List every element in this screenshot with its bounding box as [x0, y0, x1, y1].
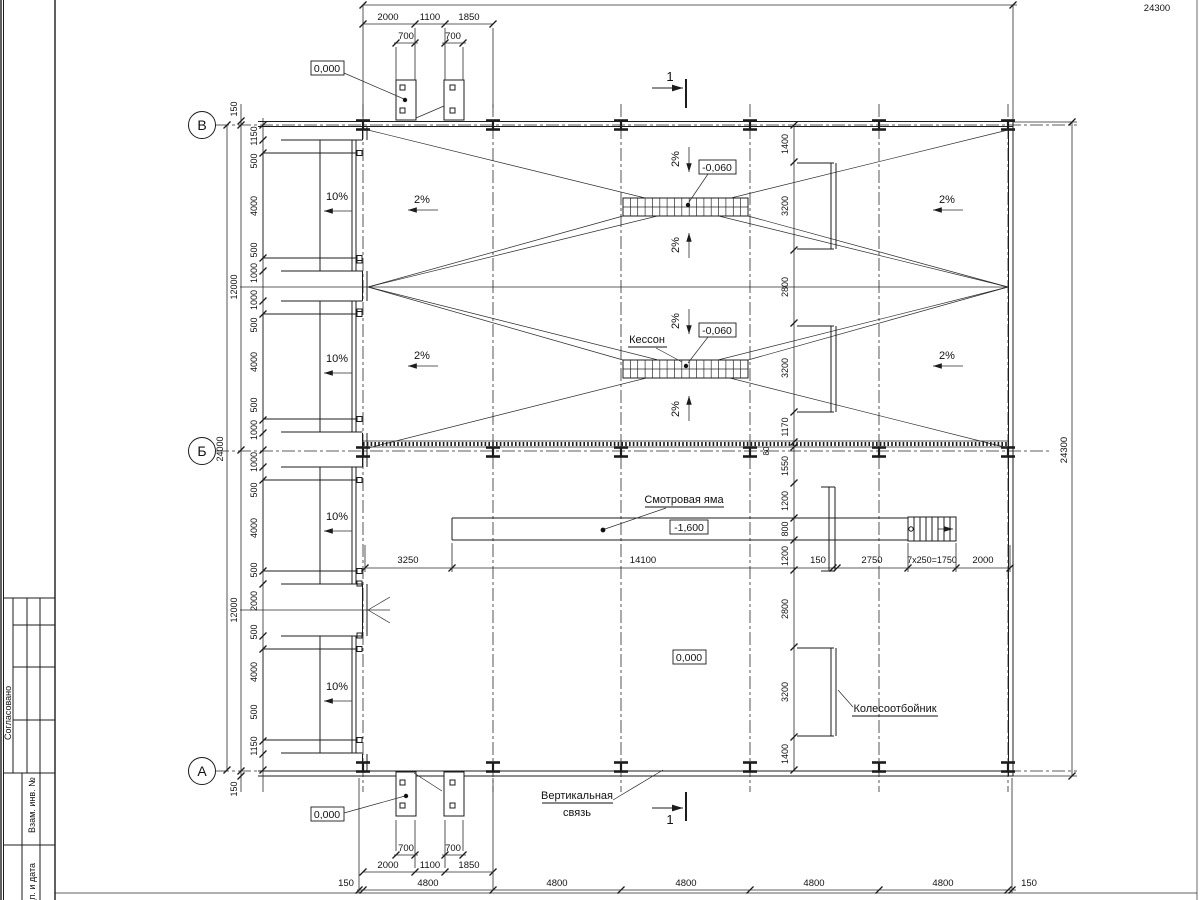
dim-label: 1850 [458, 860, 479, 871]
svg-text:0,000: 0,000 [314, 63, 340, 75]
drain-grate [623, 198, 748, 216]
dim-label: 150 [229, 781, 239, 796]
dim-label: 3200 [780, 196, 790, 216]
dim-label: 24300 [1059, 437, 1070, 463]
svg-text:0,000: 0,000 [676, 652, 702, 664]
dock-ramp [263, 467, 363, 584]
svg-text:2%: 2% [414, 194, 430, 206]
svg-text:-0,060: -0,060 [702, 325, 732, 337]
svg-text:10%: 10% [326, 353, 348, 365]
dim-label: 2800 [780, 277, 790, 297]
vertical-brace-label: Вертикальная связь [541, 770, 663, 819]
dim-label: 1400 [780, 744, 790, 764]
kesson-label: Кессон [628, 334, 682, 362]
svg-text:2%: 2% [670, 237, 682, 253]
drain-grates [623, 198, 748, 378]
dim-label: 1000 [249, 290, 259, 310]
dim-left-overall: 24000 [215, 122, 231, 774]
svg-text:Вертикальная: Вертикальная [541, 790, 613, 802]
dim-label: 500 [249, 242, 259, 257]
elevation-zero-bottom: 0,000 [311, 794, 408, 821]
dim-label: 4000 [249, 352, 259, 372]
pit-stairs [908, 517, 956, 541]
dim-top-rows: 2000 1100 1850 700 700 [360, 12, 497, 108]
dim-label: 4000 [249, 662, 259, 682]
svg-text:10%: 10% [326, 511, 348, 523]
dim-label: 4800 [546, 878, 567, 889]
loading-docks: 10% 10% 10% 10% [263, 140, 363, 753]
dim-label: 4800 [675, 878, 696, 889]
dim-label: 500 [249, 317, 259, 332]
dim-label: 500 [249, 397, 259, 412]
section-mark-bottom: 1 [652, 792, 686, 827]
dim-label: 1000 [249, 420, 259, 440]
svg-text:Смотровая яма: Смотровая яма [644, 494, 724, 506]
drain-channel-band [363, 441, 1008, 447]
dim-right-overall: 24300 [1013, 119, 1077, 780]
dim-label: 4800 [417, 878, 438, 889]
dim-label: 1150 [249, 736, 259, 755]
dim-label: 4800 [932, 878, 953, 889]
dock-ramp [263, 636, 363, 753]
axis-bubble-a: А [197, 763, 207, 779]
dim-label: 4000 [249, 196, 259, 216]
ramp-slope-label: 10% [324, 191, 352, 211]
svg-text:Колесоотбойник: Колесоотбойник [853, 703, 936, 715]
plan-canvas: Согласовано Взам. инв. № Подп. и дата В … [0, 0, 1200, 900]
svg-text:Кессон: Кессон [629, 334, 665, 346]
dim-label: 1000 [249, 452, 259, 472]
elevation-pit: -1,600 [670, 520, 708, 534]
dim-bottom-rows: 700 700 2000 1100 1850 [360, 820, 497, 876]
dim-label: 7x250=1750 [907, 555, 957, 565]
dim-label: 500 [249, 704, 259, 719]
dim-label: 12000 [229, 274, 239, 299]
svg-text:0,000: 0,000 [314, 809, 340, 821]
title-block: Согласовано Взам. инв. № Подп. и дата [3, 598, 55, 900]
dock-ramp [263, 301, 363, 432]
floor-slope-labels: 2% 2% 2% 2% 2% 2% 2% 2% [408, 147, 963, 421]
dim-label: 1170 [780, 417, 790, 436]
dim-label: 1100 [420, 12, 440, 23]
axis-bubble-b: Б [197, 443, 206, 459]
dim-label: 24000 [215, 436, 225, 461]
dim-label: 4000 [249, 518, 259, 538]
dim-label: 800 [780, 521, 790, 536]
dim-label: 4800 [803, 878, 824, 889]
dim-top-overall: 24300 [360, 2, 1171, 122]
dim-right-inner: 1400 3200 2800 3200 1170 80 1550 1200 80… [762, 122, 798, 774]
dim-label: 2000 [249, 591, 259, 611]
dock-ramp [263, 140, 363, 271]
dim-label: 3250 [397, 555, 418, 566]
svg-text:2%: 2% [670, 313, 682, 329]
dim-label: 1000 [249, 263, 259, 283]
dim-label: 80 [762, 446, 771, 455]
dim-label: 3200 [780, 682, 790, 702]
svg-text:2%: 2% [670, 401, 682, 417]
svg-text:1: 1 [666, 69, 673, 84]
dim-label: 500 [249, 624, 259, 639]
foundation-pads [396, 80, 464, 816]
dim-label: 24300 [1144, 3, 1170, 14]
dim-left-detail: 1150 500 4000 500 1000 1000 500 4000 500… [249, 118, 267, 792]
dim-left-halves: 150 12000 12000 150 [229, 101, 245, 796]
drain-grate [623, 360, 748, 378]
dim-label: 2750 [861, 555, 882, 566]
dim-label: 700 [398, 31, 414, 42]
dim-label: 1150 [249, 126, 259, 145]
dim-label: 500 [249, 153, 259, 168]
section-mark-top: 1 [652, 69, 686, 108]
dim-label: 1100 [420, 860, 440, 871]
dim-label: 1550 [780, 456, 790, 476]
building-walls [258, 122, 1013, 777]
dim-label: 700 [445, 843, 461, 854]
title-sign-date: Подп. и дата [27, 863, 37, 900]
title-agreed: Согласовано [3, 686, 13, 740]
ramp-slope-label: 10% [324, 353, 352, 373]
dim-label: 14100 [630, 555, 656, 566]
svg-text:10%: 10% [326, 191, 348, 203]
dim-label: 2800 [780, 599, 790, 619]
dim-label: 700 [445, 31, 461, 42]
dim-label: 1200 [780, 491, 790, 511]
sheet-frame [1, 0, 1197, 900]
wheel-stops [797, 163, 836, 736]
dim-label: 1400 [780, 134, 790, 154]
dim-label: 12000 [229, 597, 239, 622]
svg-text:1: 1 [666, 812, 673, 827]
dim-label: 700 [398, 843, 414, 854]
dim-label: 150 [338, 878, 354, 889]
svg-text:2%: 2% [670, 151, 682, 167]
elevation-zero-floor: 0,000 [673, 650, 706, 664]
svg-text:-1,600: -1,600 [674, 522, 704, 534]
dim-label: 2000 [377, 860, 398, 871]
svg-text:2%: 2% [939, 350, 955, 362]
elevation-zero-top: 0,000 [311, 61, 407, 102]
dim-bottom-chain: 150 4800 4800 4800 4800 4800 150 [338, 778, 1037, 894]
dim-label: 2000 [377, 12, 398, 23]
dim-label: 1850 [458, 12, 479, 23]
drawing-sheet: Согласовано Взам. инв. № Подп. и дата В … [0, 0, 1200, 900]
axis-bubble-v: В [197, 117, 206, 133]
wheel-stop [797, 648, 836, 736]
dim-label: 150 [810, 555, 826, 566]
axis-bubbles: В Б А [189, 112, 216, 785]
dim-label: 500 [249, 562, 259, 577]
dim-label: 150 [1021, 878, 1037, 889]
svg-text:-0,060: -0,060 [702, 162, 732, 174]
dim-label: 2000 [972, 555, 993, 566]
dim-label: 150 [229, 101, 239, 116]
wheel-stop [797, 163, 836, 249]
ramp-slope-label: 10% [324, 511, 352, 531]
svg-text:2%: 2% [939, 194, 955, 206]
dim-label: 500 [249, 482, 259, 497]
section-marks: 1 1 [652, 69, 686, 827]
dim-label: 1200 [780, 546, 790, 566]
ramp-slope-label: 10% [324, 681, 352, 701]
dim-label: 3200 [780, 358, 790, 378]
dim-pit-row: 3250 14100 150 2750 7x250=1750 2000 [362, 543, 1014, 572]
svg-text:10%: 10% [326, 681, 348, 693]
wheel-stop-label: Колесоотбойник [838, 690, 938, 716]
svg-text:2%: 2% [414, 350, 430, 362]
svg-text:связь: связь [563, 807, 591, 819]
title-replace-inv: Взам. инв. № [27, 777, 37, 833]
